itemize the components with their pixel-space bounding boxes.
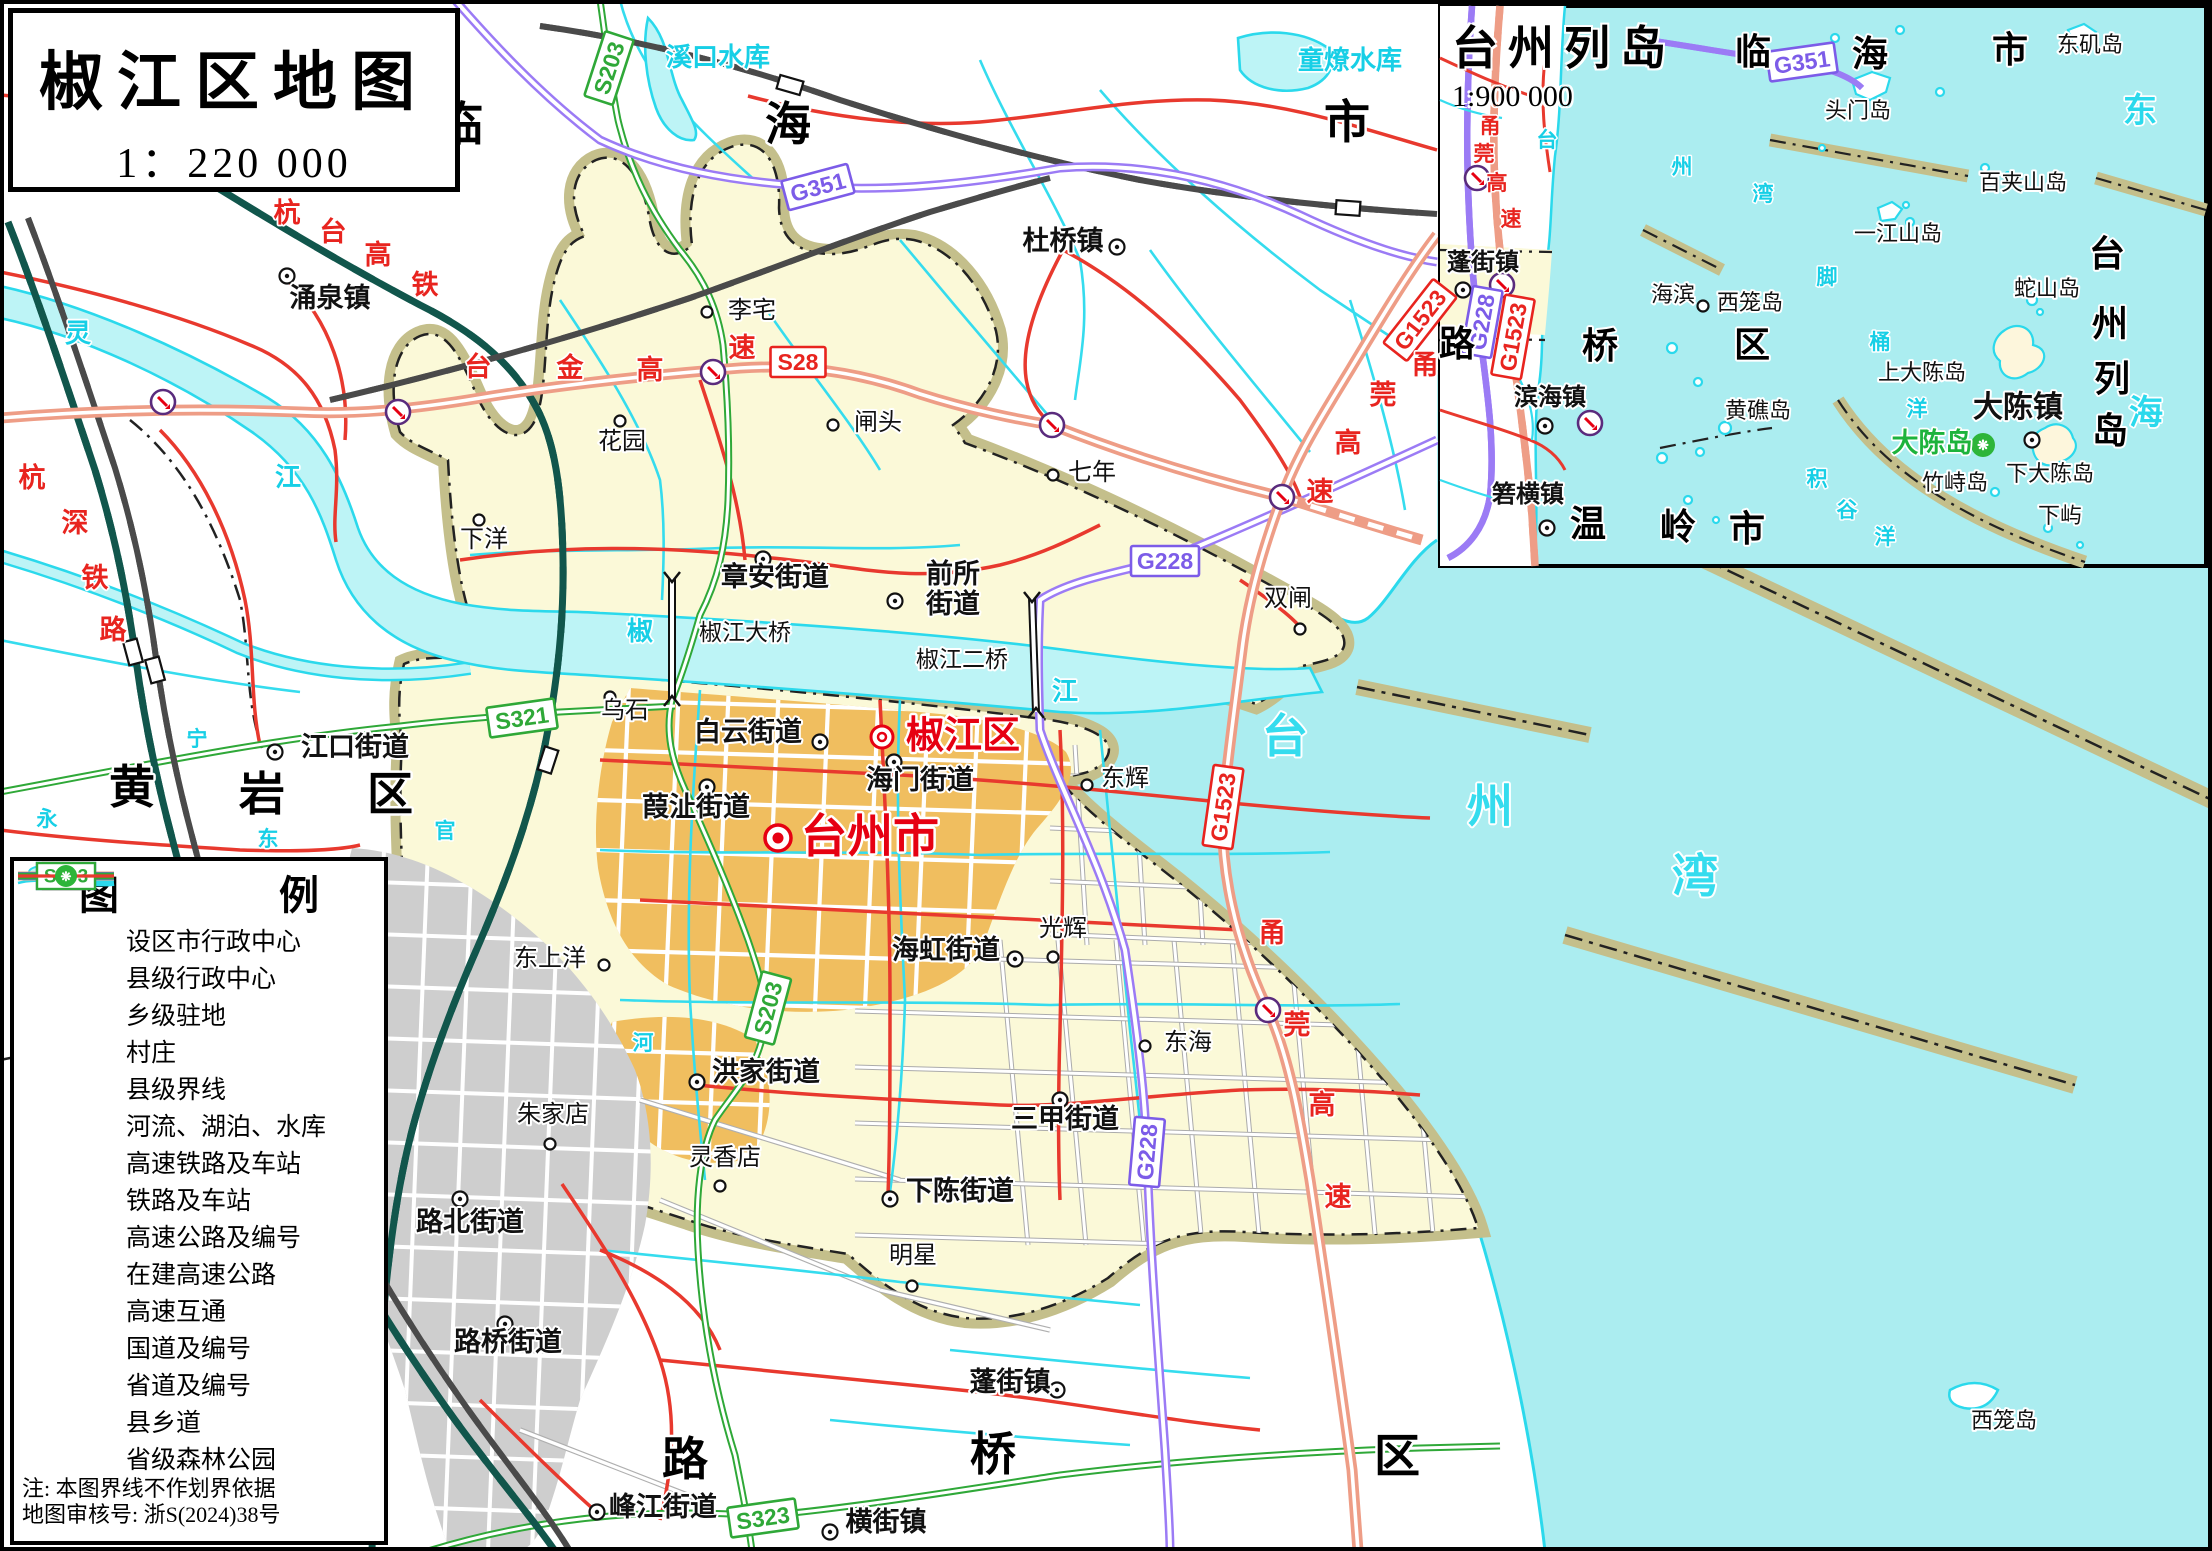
interchange-icon — [1040, 413, 1064, 437]
map-label: 杜桥镇 — [1023, 226, 1104, 256]
legend-item-label: 村庄 — [126, 1033, 176, 1069]
map-label: 路 — [1439, 324, 1476, 364]
map-label: 高 — [1309, 1089, 1336, 1120]
map-label: 闸头 — [854, 409, 902, 436]
map-label: 金 — [556, 352, 585, 383]
marker-village — [702, 307, 713, 318]
map-label: 列 — [2094, 359, 2130, 399]
map-label: 河 — [633, 1031, 654, 1055]
map-stage: ❋ S28S203S203S321S323G351G228G228G1523G1… — [0, 0, 2212, 1551]
legend: 图 例 设区市行政中心县级行政中心乡级驻地村庄县级界线河流、湖泊、水库高速铁路及… — [10, 857, 388, 1545]
marker-village — [907, 1281, 918, 1292]
map-label: 灵香店 — [689, 1144, 761, 1171]
marker-town — [2025, 433, 2040, 448]
map-label: 甬 — [1259, 918, 1286, 948]
marker-county — [871, 726, 893, 748]
legend-item-label: 县乡道 — [126, 1403, 201, 1439]
forest-park-icon: ❋ — [1971, 433, 1995, 457]
map-label: 蛇山岛 — [2014, 276, 2080, 301]
marker-town — [1456, 283, 1471, 298]
map-label: 章安街道 — [721, 561, 829, 592]
marker-village — [1295, 624, 1306, 635]
legend-item-label: 河流、湖泊、水库 — [126, 1107, 326, 1143]
map-label: 东辉 — [1101, 765, 1149, 792]
map-label: 速 — [729, 333, 756, 363]
legend-item-label: 在建高速公路 — [126, 1255, 276, 1291]
legend-item: 高速铁路及车站 — [14, 1143, 384, 1180]
svg-text:G228: G228 — [1132, 1123, 1163, 1182]
map-label: 岭 — [1660, 507, 1696, 547]
legend-item: G104国道及编号 — [14, 1328, 384, 1365]
marker-town — [453, 1192, 468, 1207]
marker-town — [1540, 521, 1555, 536]
map-label: 朱家店 — [517, 1101, 589, 1128]
marker-town — [883, 1192, 898, 1207]
marker-town — [1110, 240, 1125, 255]
marker-village — [1082, 780, 1093, 791]
map-label: 大陈镇 — [1973, 390, 2063, 424]
map-label: 椒江大桥 — [699, 620, 791, 645]
interchange-icon — [701, 360, 725, 384]
svg-text:❋: ❋ — [1977, 437, 1989, 453]
map-label: 双闸 — [1264, 585, 1312, 612]
map-label: 灵 — [65, 319, 91, 348]
map-label: 滨海镇 — [1514, 383, 1586, 411]
map-label: 下大陈岛 — [2006, 461, 2094, 486]
legend-item-label: 设区市行政中心 — [126, 922, 301, 958]
map-label: 海门街道 — [866, 764, 974, 795]
map-label: 头门岛 — [1825, 98, 1891, 123]
map-label: 东上洋 — [514, 945, 586, 972]
legend-item: 高速互通 — [14, 1291, 384, 1328]
map-label: 脚 — [1817, 265, 1838, 289]
map-label: 东海 — [1164, 1029, 1212, 1056]
map-label: 区 — [1734, 325, 1770, 365]
map-label: 下洋 — [460, 526, 508, 553]
legend-item: 村庄 — [14, 1032, 384, 1069]
legend-item-label: 铁路及车站 — [126, 1181, 251, 1217]
marker-town — [690, 1075, 705, 1090]
railway-station-icon — [1336, 200, 1361, 216]
legend-item: 在建高速公路 — [14, 1254, 384, 1291]
map-label: 州 — [1672, 155, 1693, 179]
marker-town — [888, 594, 903, 609]
map-label: 速 — [1325, 1182, 1352, 1212]
marker-town — [813, 735, 828, 750]
map-label: 李宅 — [728, 297, 776, 324]
interchange-icon — [1270, 485, 1294, 509]
marker-village — [599, 960, 610, 971]
map-label: 深 — [62, 508, 89, 538]
map-label: 高 — [637, 354, 664, 385]
map-label: 区 — [367, 769, 413, 820]
map-label: 杭 — [274, 197, 301, 228]
map-label: 积 — [1807, 467, 1828, 491]
map-label: 州 — [2092, 304, 2128, 344]
map-label: 桥 — [970, 1429, 1016, 1480]
svg-text:G228: G228 — [1137, 548, 1193, 574]
map-label: 白云街道 — [694, 716, 802, 747]
map-label: 市 — [1324, 97, 1370, 148]
map-label: 速 — [1307, 477, 1334, 507]
map-label: 海滨 — [1651, 282, 1695, 307]
map-label: 乌石 — [601, 697, 649, 724]
map-label: 光辉 — [1039, 915, 1087, 942]
map-label: 路北街道 — [416, 1206, 524, 1237]
marker-town — [823, 1525, 838, 1540]
marker-village — [1698, 301, 1709, 312]
map-label: 路 — [662, 1434, 709, 1485]
map-label: 杭 — [19, 462, 46, 493]
map-label: 江 — [1052, 677, 1078, 706]
map-label: 台 — [1262, 711, 1308, 762]
map-label: 江口街道 — [301, 731, 409, 762]
road-badge-g228: G228 — [1131, 546, 1199, 576]
marker-town — [268, 745, 283, 760]
map-label: 台 — [320, 216, 347, 247]
map-label: 竹峙岛 — [1922, 470, 1988, 495]
interchange-icon — [1256, 998, 1280, 1022]
marker-town — [280, 269, 295, 284]
map-label: 温 — [1570, 504, 1606, 544]
map-label: 东 — [258, 827, 279, 851]
marker-village — [715, 1181, 726, 1192]
map-label: 甬 — [1480, 114, 1501, 138]
map-label: 涌泉镇 — [290, 282, 371, 313]
marker-village — [1140, 1041, 1151, 1052]
map-label: 铁 — [82, 563, 109, 593]
legend-item: 铁路及车站 — [14, 1180, 384, 1217]
legend-item: 县级行政中心 — [14, 958, 384, 995]
marker-village — [828, 420, 839, 431]
legend-item: 河流、湖泊、水库 — [14, 1106, 384, 1143]
map-label: 岩 — [239, 769, 285, 820]
map-label: 临 — [1735, 32, 1771, 72]
legend-item: 乡级驻地 — [14, 995, 384, 1032]
map-label: 台州市 — [801, 810, 939, 862]
legend-item-label: 县级行政中心 — [126, 959, 276, 995]
map-label: 甬 — [1412, 350, 1439, 380]
map-label: 高 — [1335, 427, 1362, 458]
legend-item: S28高速公路及编号 — [14, 1217, 384, 1254]
map-label: 百夹山岛 — [1979, 170, 2067, 195]
legend-note: 注: 本图界线不作划界依据 — [14, 1476, 384, 1502]
legend-item: 县级界线 — [14, 1069, 384, 1106]
road-badge-g228: G228 — [1129, 1117, 1165, 1187]
map-label: 莞 — [1370, 380, 1397, 410]
map-label: 莞 — [1474, 142, 1495, 166]
marker-city — [765, 825, 791, 851]
map-label: 下屿 — [2038, 503, 2082, 528]
svg-text:❋: ❋ — [61, 869, 72, 884]
map-label: 葭沚街道 — [642, 791, 750, 822]
map-label: 椒 — [627, 617, 653, 646]
map-label: 洪家街道 — [712, 1056, 820, 1087]
map-title: 椒江区地图 — [13, 31, 455, 123]
map-label: 官 — [435, 819, 456, 843]
legend-item-label: 高速互通 — [126, 1292, 226, 1328]
map-label: 海 — [765, 99, 811, 150]
map-label: 东 — [2123, 91, 2157, 130]
map-label: 大陈岛 — [1892, 427, 1973, 458]
map-label: 椒江二桥 — [916, 647, 1008, 672]
map-label: 海 — [2129, 394, 2163, 432]
legend-item-label: 省道及编号 — [126, 1366, 251, 1402]
marker-village — [615, 416, 626, 427]
map-label: 三甲街道 — [1011, 1103, 1119, 1134]
map-label: 前所 — [926, 558, 980, 589]
map-label: 市 — [1729, 509, 1765, 549]
map-label: 下陈街道 — [906, 1175, 1014, 1206]
map-label: 上大陈岛 — [1878, 360, 1966, 385]
map-label: 湾 — [1672, 851, 1718, 902]
map-label: 路桥街道 — [454, 1326, 562, 1357]
map-label: 高 — [1487, 171, 1508, 195]
legend-item: ❋省级森林公园 — [14, 1439, 384, 1476]
map-label: 桶 — [1870, 330, 1891, 354]
map-label: 峰江街道 — [609, 1491, 717, 1522]
map-label: 莞 — [1284, 1010, 1311, 1040]
map-label: 海虹街道 — [892, 934, 1000, 965]
map-label: 州 — [1467, 781, 1513, 832]
map-label: 洋 — [1875, 525, 1896, 549]
road-badge-s28: S28 — [771, 347, 826, 377]
map-label: 西笼岛 — [1971, 1408, 2037, 1433]
legend-item-label: 高速公路及编号 — [126, 1218, 301, 1254]
legend-item-label: 县级界线 — [126, 1070, 226, 1106]
map-label: 花园 — [598, 428, 646, 455]
svg-text:S28: S28 — [778, 349, 819, 375]
map-label: 一江山岛 — [1854, 221, 1942, 246]
marker-village — [474, 515, 485, 526]
map-label: 溪口水库 — [666, 43, 770, 72]
map-label: 铁 — [412, 270, 439, 300]
map-label: 黄礁岛 — [1725, 398, 1791, 423]
map-label: 街道 — [925, 588, 980, 619]
map-label: 西笼岛 — [1717, 290, 1783, 315]
map-label: 市 — [1992, 30, 2028, 70]
map-label: 海 — [1852, 34, 1888, 74]
marker-town — [590, 1505, 605, 1520]
map-label: 江 — [275, 463, 301, 492]
legend-item-label: 国道及编号 — [126, 1329, 251, 1365]
map-label: 横街镇 — [846, 1507, 927, 1537]
map-label: 童燎水库 — [1298, 45, 1402, 75]
map-label: 台 — [465, 351, 492, 382]
map-label: 椒江区 — [906, 715, 1020, 757]
map-label: 明星 — [889, 1243, 937, 1269]
map-label: 高 — [365, 239, 392, 270]
marker-village — [545, 1139, 556, 1150]
marker-village — [1048, 952, 1059, 963]
interchange-icon — [1578, 411, 1602, 435]
map-label: 洋 — [1907, 397, 1928, 421]
map-label: 台 — [1537, 128, 1558, 152]
map-label: 黄 — [109, 762, 155, 813]
map-label: 东矶岛 — [2057, 32, 2123, 57]
map-label: 岛 — [2092, 411, 2128, 451]
map-label: 区 — [1374, 1431, 1420, 1482]
forest-park-icons: ❋ — [1971, 433, 1995, 457]
map-label: 湾 — [1753, 182, 1774, 206]
interchange-icon — [386, 400, 410, 424]
map-label: 七年 — [1068, 459, 1116, 486]
title-box: 椒江区地图 1：220 000 — [8, 8, 460, 192]
map-label: 宁 — [187, 727, 208, 751]
interchange-icon — [1465, 166, 1489, 190]
map-label: 谷 — [1837, 498, 1859, 522]
legend-note: 地图审核号: 浙S(2024)38号 — [14, 1502, 384, 1528]
legend-item-label: 乡级驻地 — [126, 996, 226, 1032]
marker-village — [1048, 470, 1059, 481]
map-label: 台 — [2089, 234, 2125, 274]
legend-item-label: 高速铁路及车站 — [126, 1144, 301, 1180]
map-label: 箬横镇 — [1492, 480, 1564, 508]
marker-town — [1008, 952, 1023, 967]
marker-town — [1050, 1383, 1065, 1398]
marker-town — [1538, 419, 1553, 434]
map-label: 桥 — [1582, 326, 1618, 366]
map-label: 路 — [100, 614, 128, 645]
map-label: 永 — [36, 807, 58, 831]
map-label: 蓬街镇 — [970, 1367, 1051, 1397]
interchange-icon — [151, 390, 175, 414]
legend-item: 县乡道 — [14, 1402, 384, 1439]
legend-item: 设区市行政中心 — [14, 921, 384, 958]
map-scale: 1：220 000 — [13, 129, 455, 190]
legend-item: S203省道及编号 — [14, 1365, 384, 1402]
map-label: 蓬街镇 — [1447, 248, 1519, 276]
map-label: 速 — [1501, 207, 1522, 231]
legend-item-label: 省级森林公园 — [126, 1440, 276, 1476]
